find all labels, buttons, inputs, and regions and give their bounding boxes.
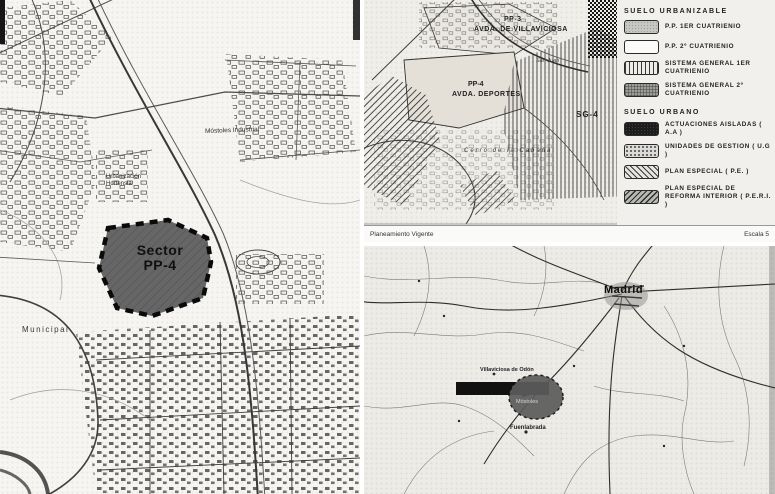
label-san-juan: San Juan <box>536 58 559 64</box>
legend-item: P.P. 2º CUATRIENIO <box>624 40 775 54</box>
legend-swatch-sg-1er <box>624 61 659 75</box>
label-urbanizacion: Urbanización Hortensia <box>106 174 156 188</box>
legend-item-label: PLAN ESPECIAL ( P.E. ) <box>665 168 749 176</box>
legend-swatch-pp-1er <box>624 20 659 34</box>
legend: SUELO URBANIZABLE P.P. 1er CUATRIENIO P.… <box>617 0 775 225</box>
caption-bar: Planeamiento Vigente Escala 5 <box>364 225 775 242</box>
caption-escala: Escala 5 <box>744 231 769 238</box>
legend-item: P.P. 1er CUATRIENIO <box>624 20 775 34</box>
legend-item: ACTUACIONES AISLADAS ( A.A ) <box>624 121 775 137</box>
label-pp4: PP-4 <box>468 81 484 88</box>
label-pp4-avenue: AVDA. DEPORTES <box>452 91 521 98</box>
region-map-panel: Madrid Villaviciosa de Odón Móstoles Fue… <box>364 246 775 494</box>
legend-item-label: SISTEMA GENERAL 1er CUATRIENIO <box>665 60 775 76</box>
label-madrid: Madrid <box>604 284 643 296</box>
scanned-planning-document: Móstoles Industrial Urbanización Hortens… <box>0 0 775 494</box>
label-pp3: PP-3 <box>504 16 522 23</box>
legend-swatch-aa <box>624 122 659 136</box>
blocks-patch <box>0 0 112 96</box>
legend-item-label: PLAN ESPECIAL DE REFORMA INTERIOR ( P.E.… <box>665 185 773 209</box>
blocks-patch-industrial <box>226 54 356 162</box>
legend-item-label: SISTEMA GENERAL 2º CUATRIENIO <box>665 82 775 98</box>
label-mostoles: Móstoles <box>516 399 538 405</box>
city-map-panel: Móstoles Industrial Urbanización Hortens… <box>0 0 360 494</box>
legend-item: PLAN ESPECIAL ( P.E. ) <box>624 165 775 179</box>
blocks-patch-dense <box>76 314 360 494</box>
label-sg4: SG-4 <box>576 110 599 119</box>
legend-item: SISTEMA GENERAL 2º CUATRIENIO <box>624 82 775 98</box>
legend-swatch-pe <box>624 165 659 179</box>
label-cerro-cabana: Cerro de la Cabaña <box>464 148 552 154</box>
legend-swatch-peri <box>624 190 659 204</box>
caption-planeamiento: Planeamiento Vigente <box>370 231 433 238</box>
planning-map-panel: PP-3 AVDA. DE VILLAVICIOSA PP-4 AVDA. DE… <box>364 0 775 242</box>
legend-item-label: ACTUACIONES AISLADAS ( A.A ) <box>665 121 775 137</box>
sector-label-line1: Sector <box>116 243 204 258</box>
legend-item: UNIDADES DE GESTION ( U.G ) <box>624 143 775 159</box>
legend-title-urbano: SUELO URBANO <box>624 109 775 116</box>
legend-title-urbanizable: SUELO URBANIZABLE <box>624 8 775 15</box>
region-map-canvas <box>364 246 775 494</box>
sector-label-line2: PP-4 <box>116 258 204 273</box>
legend-item: SISTEMA GENERAL 1er CUATRIENIO <box>624 60 775 76</box>
legend-swatch-sg-2o <box>624 83 659 97</box>
label-pp3-avenue: AVDA. DE VILLAVICIOSA <box>474 26 568 33</box>
blocks-patch <box>0 106 96 252</box>
label-villaviciosa: Villaviciosa de Odón <box>480 367 534 373</box>
legend-item-label: UNIDADES DE GESTION ( U.G ) <box>665 143 775 159</box>
label-municipal: Municipal <box>22 325 69 334</box>
location-marker-blob <box>509 375 563 419</box>
sector-pp4-label: Sector PP-4 <box>116 243 204 272</box>
legend-swatch-ug <box>624 144 659 158</box>
legend-item-label: P.P. 2º CUATRIENIO <box>665 43 734 51</box>
legend-item-label: P.P. 1er CUATRIENIO <box>665 23 741 31</box>
legend-swatch-pp-2o <box>624 40 659 54</box>
legend-item: PLAN ESPECIAL DE REFORMA INTERIOR ( P.E.… <box>624 185 775 209</box>
label-fuenlabrada: Fuenlabrada <box>510 425 546 431</box>
location-marker <box>456 375 563 419</box>
